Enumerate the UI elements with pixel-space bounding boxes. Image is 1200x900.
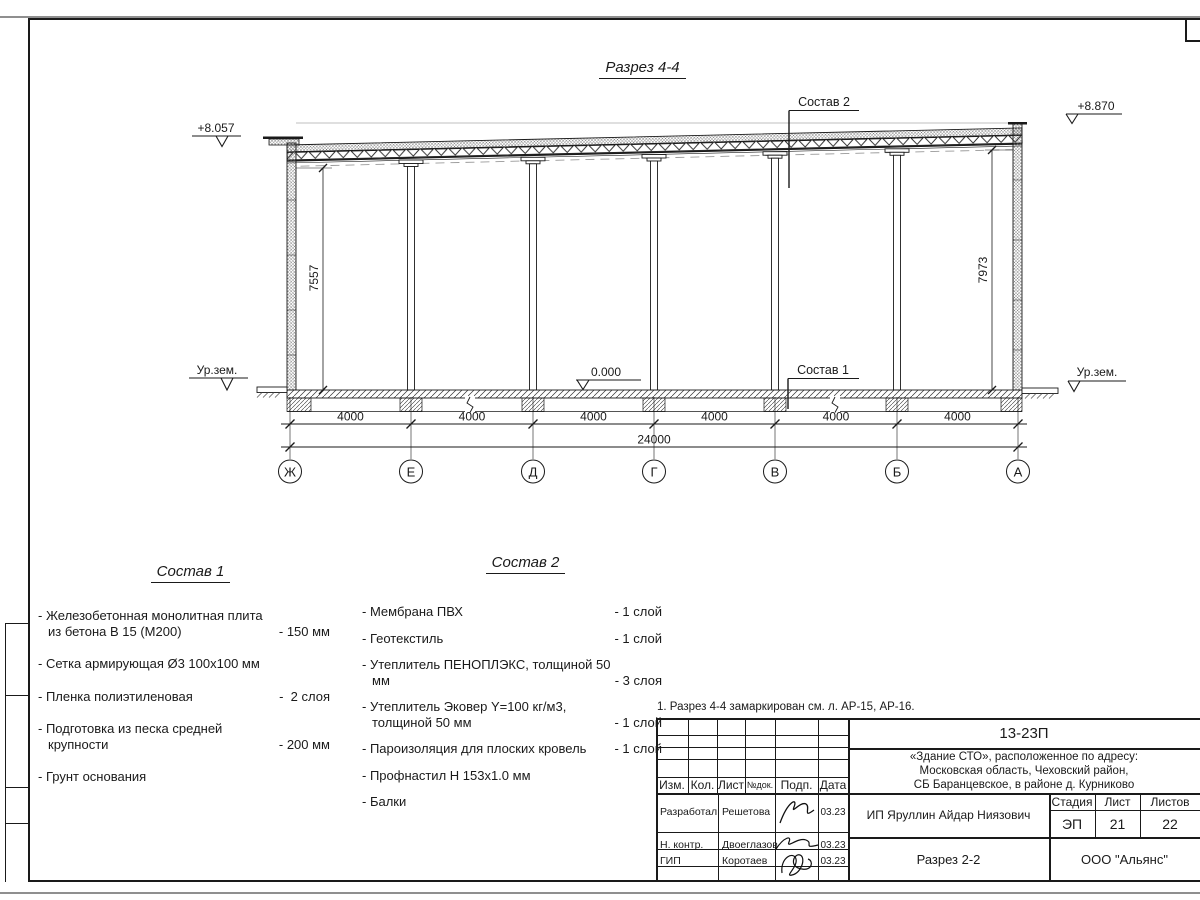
column <box>642 155 666 391</box>
layer-item: - Утеплитель Эковер Y=100 кг/м3, толщино… <box>362 699 662 730</box>
titleblock-line <box>656 747 848 748</box>
leader-label-sostav2: Состав 2 <box>798 95 850 109</box>
margin-divider <box>5 695 28 696</box>
name-gip: Коротаев <box>722 854 778 868</box>
foundation-pads <box>287 398 1022 412</box>
margin-divider <box>5 787 28 788</box>
role-developer: Разработал <box>660 805 718 819</box>
axis-label: А <box>1014 465 1023 480</box>
client-name: ИП Яруллин Айдар Ниязович <box>848 793 1049 837</box>
col-header-data: Дата <box>818 777 848 793</box>
layer-item: - Мембрана ПВХ- 1 слой <box>362 604 662 620</box>
col-header-podp: Подп. <box>775 777 818 793</box>
ground-ledge-right <box>1022 388 1058 399</box>
axis-label: Г <box>650 465 657 480</box>
sheet-note: 1. Разрез 4-4 замаркирован см. л. АР-15,… <box>657 701 1077 713</box>
axis-label: Ж <box>284 465 296 480</box>
titleblock-line <box>656 759 848 760</box>
layer-item: - Утеплитель ПЕНОПЛЭКС, толщиной 50 мм- … <box>362 657 662 688</box>
extension-lines <box>290 397 1018 459</box>
sostav2-heading: Состав 2 <box>463 554 588 574</box>
layer-item: - Сетка армирующая Ø3 100х100 мм <box>38 656 330 672</box>
col-header-izm: Изм. <box>656 777 688 793</box>
project-line: Московская область, Чеховский район, <box>910 764 1138 778</box>
dim-bay: 4000 <box>459 410 486 424</box>
ground-level-label-right: Ур.зем. <box>1077 365 1118 379</box>
left-wall-panel <box>287 143 296 390</box>
role-gip: ГИП <box>660 854 718 868</box>
date-gip: 03.23 <box>818 855 848 868</box>
col-header-ndok: №док. <box>745 777 775 793</box>
axis-label: Е <box>407 465 416 480</box>
layer-item: - Грунт основания <box>38 769 330 785</box>
ground-ledge-left <box>257 387 287 398</box>
date-normcontrol: 03.23 <box>818 839 848 852</box>
col-header-kol: Кол. <box>688 777 717 793</box>
drawing-sheet: Разрез 4-4 <box>0 0 1200 900</box>
leader-label-sostav1: Состав 1 <box>797 363 849 377</box>
column <box>521 157 545 390</box>
axis-label: Б <box>893 465 902 480</box>
titleblock-line <box>656 735 848 736</box>
drawing-name: Разрез 2-2 <box>848 837 1049 882</box>
date-developer: 03.23 <box>818 806 848 819</box>
sheet-label: Лист <box>1095 793 1140 810</box>
columns <box>399 149 909 390</box>
left-wall <box>263 137 303 391</box>
layer-item: - Балки <box>362 794 662 810</box>
titleblock-line <box>718 793 719 882</box>
axis-label: Д <box>529 465 538 480</box>
doc-number: 13-23П <box>848 718 1200 748</box>
role-normcontrol: Н. контр. <box>660 838 718 852</box>
column <box>763 152 787 390</box>
layer-item: - Железобетонная монолитная плита из бет… <box>38 608 330 639</box>
dim-bay: 4000 <box>337 410 364 424</box>
sostav2-list: - Мембрана ПВХ- 1 слой - Геотекстиль- 1 … <box>362 604 662 821</box>
dim-wall-right: 7973 <box>976 256 990 283</box>
column <box>399 160 423 390</box>
dim-bay: 4000 <box>823 410 850 424</box>
margin-divider <box>5 823 28 824</box>
elevation-roof-left: +8.057 <box>197 121 234 135</box>
sostav1-heading: Состав 1 <box>128 563 253 583</box>
sheets-label: Листов <box>1140 793 1200 810</box>
name-normcontrol: Двоеглазов <box>722 838 778 852</box>
signature-normcontrol-gip <box>772 833 822 879</box>
margin-divider <box>5 623 28 624</box>
dim-bay: 4000 <box>944 410 971 424</box>
axis-label: В <box>771 465 780 480</box>
sheet-number: 21 <box>1095 810 1140 837</box>
right-wall <box>1008 122 1027 390</box>
layer-item: - Профнастил Н 153х1.0 мм <box>362 768 662 784</box>
column <box>885 149 909 390</box>
ground-level-label-left: Ур.зем. <box>197 363 238 377</box>
col-header-list: Лист <box>717 777 745 793</box>
stage-value: ЭП <box>1049 810 1095 837</box>
signature-developer <box>776 795 818 829</box>
dim-wall-left: 7557 <box>307 264 321 291</box>
elevation-roof-right: +8.870 <box>1077 99 1114 113</box>
dim-bay: 4000 <box>701 410 728 424</box>
margin-column <box>5 623 6 882</box>
name-developer: Решетова <box>722 805 774 819</box>
stage-label: Стадия <box>1049 793 1095 810</box>
layer-item: - Подготовка из песка средней крупности-… <box>38 721 330 752</box>
titleblock-border <box>656 718 658 882</box>
layer-item: - Пароизоляция для плоских кровель- 1 сл… <box>362 741 662 757</box>
axis-bubbles: Ж Е Д Г В Б А <box>279 460 1030 483</box>
dim-total: 24000 <box>637 433 671 447</box>
paper-edge-bottom <box>0 892 1200 894</box>
project-line: СБ Баранцевское, в районе д. Курниково <box>910 778 1138 792</box>
layer-item: - Геотекстиль- 1 слой <box>362 631 662 647</box>
section-drawing: +8.057 +8.870 0.000 Ур.зем. Ур.зем. Сост… <box>0 0 1200 560</box>
company-name: ООО "Альянс" <box>1049 837 1200 882</box>
layer-item: - Пленка полиэтиленовая- 2 слоя <box>38 689 330 705</box>
sheets-total: 22 <box>1140 810 1200 837</box>
elevation-floor: 0.000 <box>591 365 621 379</box>
sostav1-list: - Железобетонная монолитная плита из бет… <box>38 608 330 802</box>
project-line: «Здание СТО», расположенное по адресу: <box>910 750 1138 764</box>
project-description: «Здание СТО», расположенное по адресу: М… <box>848 748 1200 793</box>
dim-bay: 4000 <box>580 410 607 424</box>
